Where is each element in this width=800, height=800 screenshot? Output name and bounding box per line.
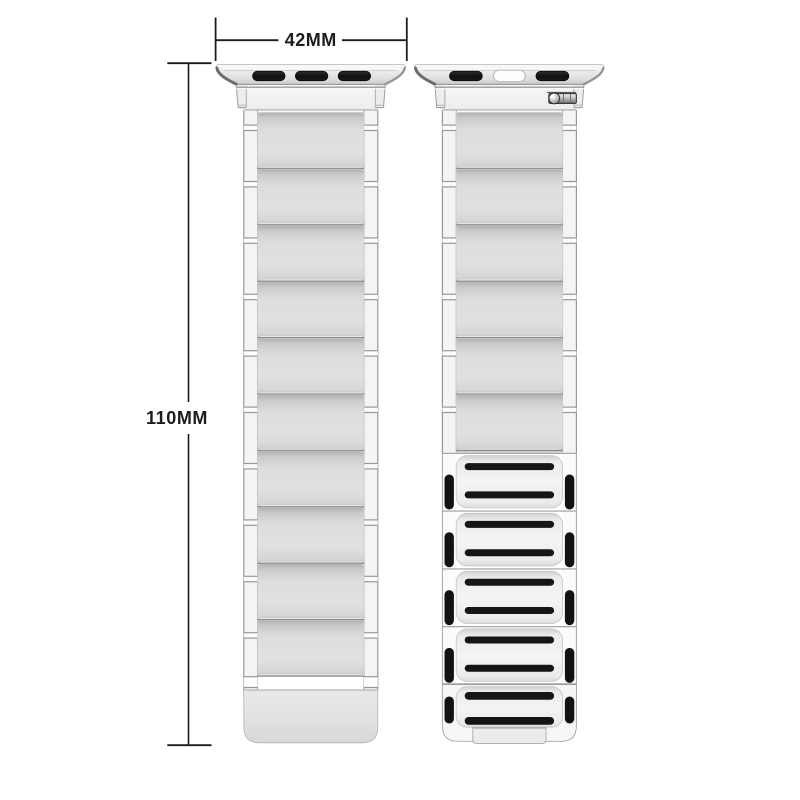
svg-text:110MM: 110MM bbox=[146, 408, 208, 428]
svg-text:42MM: 42MM bbox=[285, 30, 337, 50]
